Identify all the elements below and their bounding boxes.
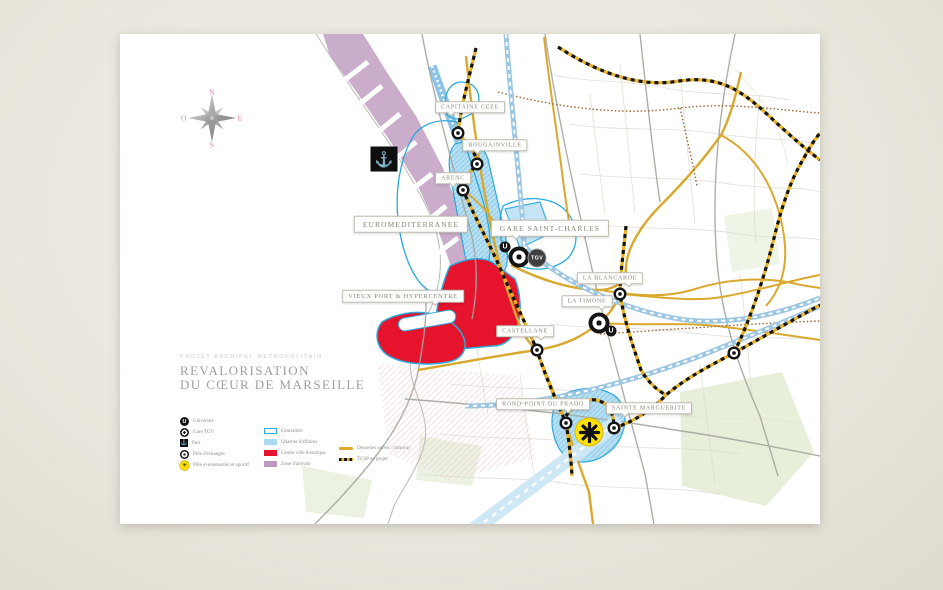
legend-label: Dessertes autres : tramway (357, 446, 411, 451)
legend-label: TCSP en projet (357, 457, 388, 462)
legend-item-quartier-affaires: Quartier d'affaires (264, 439, 317, 445)
legend-item-tcsp: TCSP en projet (339, 457, 388, 462)
title-block: PROJET ARCHIPEL METROPOLITAIN REVALORISA… (180, 354, 410, 391)
legend-label: Université (193, 419, 214, 424)
legend-label: Pôle d'échanges (193, 452, 225, 457)
anchor-glyph: ⚓ (375, 150, 394, 168)
station-capitaine-geze-icon (452, 127, 465, 140)
station-bougainville-icon (471, 158, 484, 171)
event-hub-star-icon (576, 419, 603, 446)
university-badge-la-timone: U (606, 326, 617, 337)
legend-label: Zone d'activité (281, 462, 311, 467)
university-badge-st-charles: U (500, 242, 511, 253)
station-east-icon (728, 347, 741, 360)
page-background: { "poster": { "kicker": "PROJET ARCHIPEL… (0, 0, 943, 590)
label-la-timone: LA TIMONE (562, 295, 613, 307)
legend-label: Pôle événementiel et sportif (193, 463, 249, 468)
legend-item-university: U Université (180, 417, 214, 426)
map-sheet: N E S O ⚓ U TGV U CAPITAINE GEZE BOUGAIN… (120, 34, 820, 524)
tcsp-line-swatch (339, 458, 353, 462)
legend-item-port: ⚓ Port (180, 439, 200, 447)
university-icon: U (180, 417, 189, 426)
port-anchor-icon: ⚓ (371, 147, 398, 172)
activity-zone-swatch (264, 461, 277, 467)
legend-item-gare-tgv: Gare TGV (180, 428, 214, 437)
legend-label: Gare TGV (193, 430, 214, 435)
station-sainte-marguerite-icon (608, 422, 621, 435)
legend-item-interchange: Pôle d'échanges (180, 450, 225, 459)
historic-center-swatch (264, 450, 277, 456)
label-gare-saint-charles: GARE SAINT-CHARLES (491, 220, 609, 237)
station-castellane-icon (531, 344, 544, 357)
station-arenc-icon (457, 184, 470, 197)
legend-item-centralites: Centralités (264, 428, 303, 434)
compass-east-label: E (237, 114, 242, 123)
label-arenc: ARENC (435, 172, 471, 184)
legend: U Université Gare TGV ⚓ Port Pôle d'écha… (180, 417, 530, 477)
tramway-line-swatch (339, 447, 353, 450)
label-castellane: CASTELLANE (496, 325, 554, 337)
legend-item-event-hub: ✳ Pôle événementiel et sportif (180, 461, 249, 470)
label-la-blancarde: LA BLANCARDE (577, 272, 643, 284)
station-rond-point-du-prado-icon (560, 417, 573, 430)
label-rond-point-du-prado: ROND-POINT DU PRADO (496, 398, 590, 410)
compass-south-label: S (210, 141, 215, 150)
interchange-gare-saint-charles-icon (509, 247, 530, 268)
legend-item-zone-activite: Zone d'activité (264, 461, 311, 467)
label-vieux-port-hypercentre: VIEUX PORT & HYPERCENTRE (342, 290, 464, 303)
legend-label: Centre ville historique (281, 451, 326, 456)
port-icon: ⚓ (180, 439, 188, 447)
legend-item-centre-historique: Centre ville historique (264, 450, 326, 456)
tgv-badge: TGV (529, 250, 546, 267)
event-hub-icon: ✳ (180, 461, 189, 470)
compass-west-label: O (181, 114, 187, 123)
historic-center-zone (377, 259, 520, 364)
tgv-station-icon (180, 428, 189, 437)
page-title: REVALORISATION DU CŒUR DE MARSEILLE (180, 364, 410, 391)
station-la-blancarde-icon (614, 288, 627, 301)
title-line-2: DU CŒUR DE MARSEILLE (180, 378, 410, 392)
label-bougainville: BOUGAINVILLE (462, 139, 527, 151)
legend-label: Quartier d'affaires (281, 440, 317, 445)
label-capitaine-geze: CAPITAINE GEZE (435, 101, 505, 113)
label-euromediterranee: EUROMEDITERRANEE (354, 216, 468, 233)
label-sainte-marguerite: SAINTE MARGUERITE (606, 402, 692, 414)
title-line-1: REVALORISATION (180, 364, 410, 378)
star-glyph (578, 421, 600, 443)
legend-label: Port (192, 441, 200, 446)
title-kicker: PROJET ARCHIPEL METROPOLITAIN (180, 354, 410, 360)
compass-north-label: N (209, 88, 215, 97)
interchange-icon (180, 450, 189, 459)
legend-item-tramway: Dessertes autres : tramway (339, 446, 411, 451)
centrality-swatch (264, 428, 277, 434)
compass-rose: N E S O (178, 84, 246, 154)
legend-label: Centralités (281, 429, 303, 434)
business-district-swatch (264, 439, 277, 445)
